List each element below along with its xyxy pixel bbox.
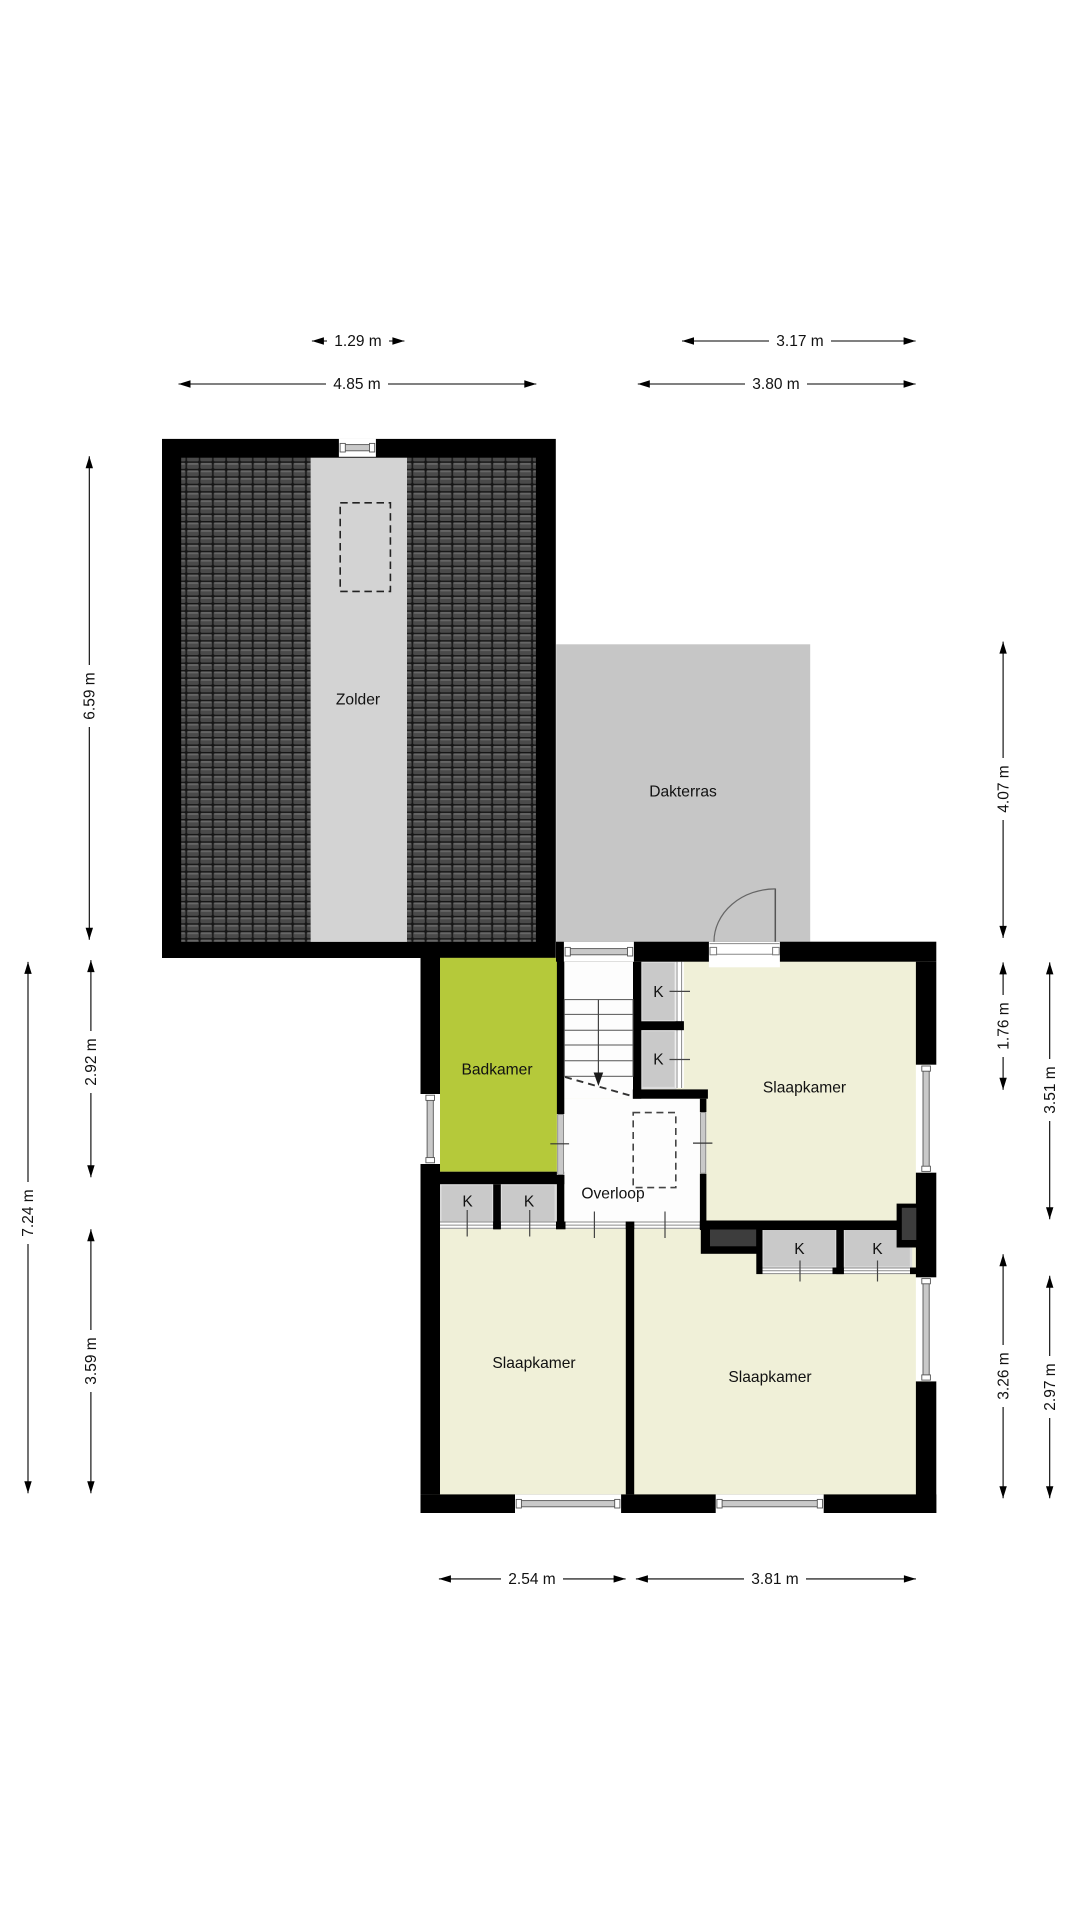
svg-text:3.81 m: 3.81 m: [751, 1571, 798, 1588]
svg-text:K: K: [794, 1241, 805, 1258]
svg-text:Slaapkamer: Slaapkamer: [492, 1355, 575, 1372]
svg-text:4.07 m: 4.07 m: [995, 765, 1012, 812]
svg-text:K: K: [653, 984, 664, 1001]
svg-text:3.26 m: 3.26 m: [995, 1352, 1012, 1399]
svg-text:K: K: [524, 1193, 535, 1210]
svg-text:K: K: [462, 1193, 473, 1210]
svg-text:3.17 m: 3.17 m: [776, 333, 823, 350]
svg-text:2.97 m: 2.97 m: [1042, 1363, 1059, 1410]
svg-text:7.24 m: 7.24 m: [20, 1189, 37, 1236]
svg-text:Overloop: Overloop: [581, 1185, 645, 1202]
svg-text:Badkamer: Badkamer: [461, 1062, 532, 1079]
svg-text:Slaapkamer: Slaapkamer: [728, 1369, 811, 1386]
svg-text:1.29 m: 1.29 m: [334, 333, 381, 350]
svg-text:3.80 m: 3.80 m: [752, 376, 799, 393]
svg-text:3.59 m: 3.59 m: [83, 1337, 100, 1384]
svg-text:K: K: [653, 1052, 664, 1069]
svg-text:3.51 m: 3.51 m: [1042, 1066, 1059, 1113]
svg-text:1.76 m: 1.76 m: [995, 1002, 1012, 1049]
svg-text:Slaapkamer: Slaapkamer: [763, 1079, 846, 1096]
svg-text:K: K: [872, 1241, 883, 1258]
svg-text:6.59 m: 6.59 m: [82, 672, 99, 719]
svg-text:Dakterras: Dakterras: [649, 783, 717, 800]
svg-text:Zolder: Zolder: [336, 691, 380, 708]
svg-text:2.54 m: 2.54 m: [508, 1571, 555, 1588]
svg-text:4.85 m: 4.85 m: [333, 376, 380, 393]
svg-text:2.92 m: 2.92 m: [83, 1038, 100, 1085]
